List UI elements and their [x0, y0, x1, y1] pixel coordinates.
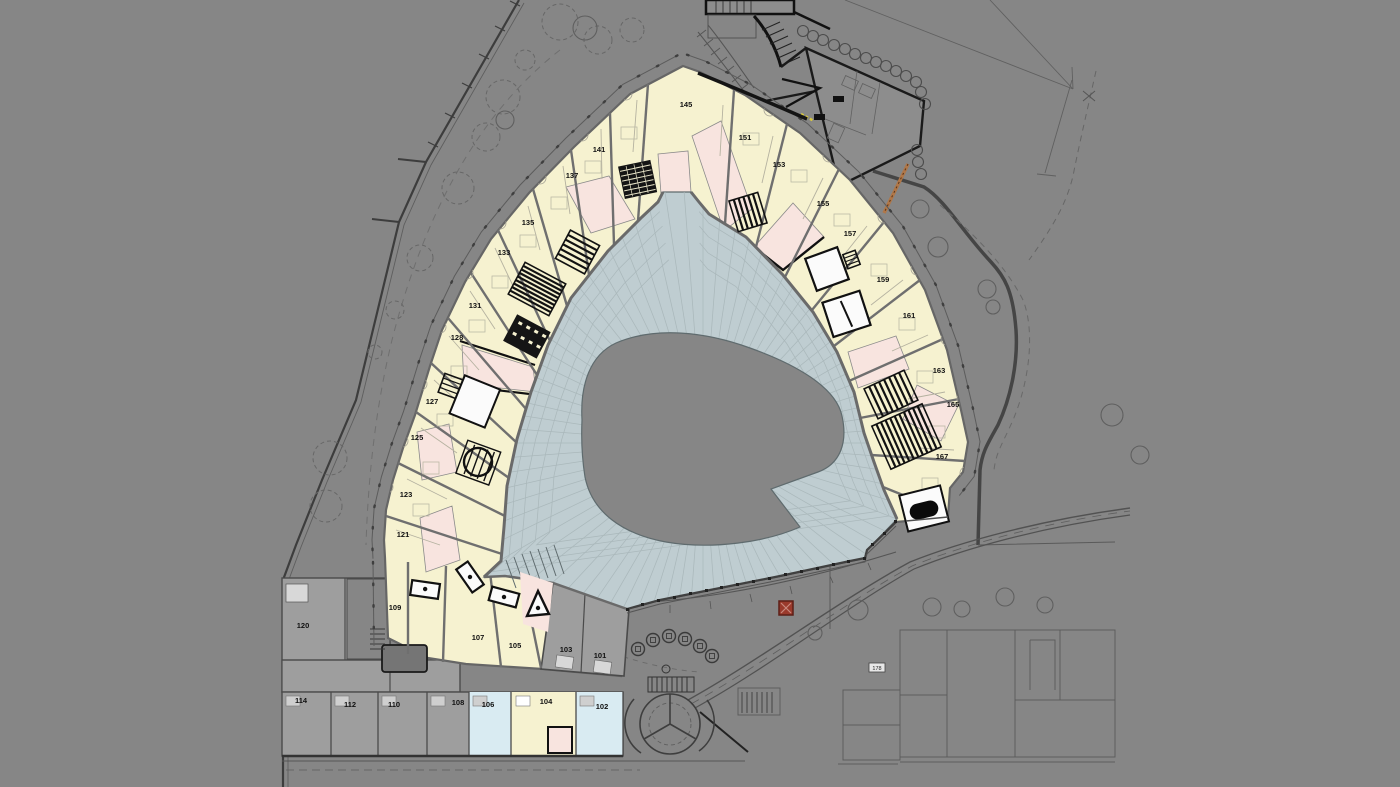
svg-text:121: 121 [397, 530, 410, 539]
svg-text:114: 114 [295, 696, 308, 705]
svg-text:155: 155 [817, 199, 830, 208]
svg-text:153: 153 [773, 160, 786, 169]
svg-text:110: 110 [388, 700, 400, 709]
svg-text:133: 133 [498, 248, 511, 257]
svg-text:157: 157 [844, 229, 857, 238]
svg-text:127: 127 [426, 397, 439, 406]
svg-text:137: 137 [566, 171, 579, 180]
svg-text:167: 167 [936, 452, 949, 461]
svg-text:123: 123 [400, 490, 413, 499]
svg-text:104: 104 [540, 697, 553, 706]
svg-text:101: 101 [594, 651, 607, 660]
svg-text:141: 141 [593, 145, 606, 154]
svg-text:135: 135 [522, 218, 535, 227]
svg-text:178: 178 [872, 666, 881, 672]
svg-text:145: 145 [680, 100, 693, 109]
svg-text:106: 106 [482, 700, 495, 709]
svg-text:102: 102 [596, 702, 609, 711]
svg-text:151: 151 [739, 133, 752, 142]
svg-text:107: 107 [472, 633, 485, 642]
svg-text:163: 163 [933, 366, 946, 375]
svg-text:112: 112 [344, 700, 356, 709]
svg-text:109: 109 [389, 603, 402, 612]
svg-text:103: 103 [560, 645, 573, 654]
svg-text:125: 125 [411, 433, 424, 442]
svg-text:159: 159 [877, 275, 890, 284]
svg-text:131: 131 [469, 301, 482, 310]
svg-text:105: 105 [509, 641, 522, 650]
svg-text:161: 161 [903, 311, 916, 320]
svg-text:165: 165 [947, 400, 960, 409]
svg-text:128: 128 [451, 333, 464, 342]
svg-text:108: 108 [452, 698, 465, 707]
svg-text:120: 120 [297, 621, 310, 630]
